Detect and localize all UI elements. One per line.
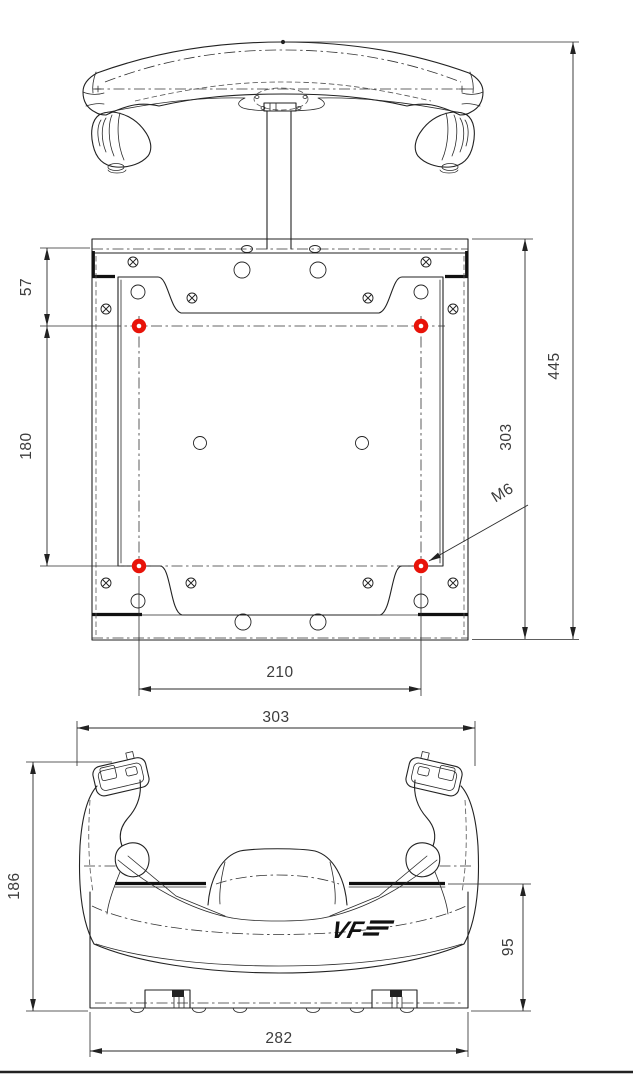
- dim-445-label: 445: [546, 352, 563, 379]
- base-box: [90, 892, 468, 1008]
- dim-95: 95: [448, 884, 531, 1011]
- vf-logo: VF: [329, 917, 396, 944]
- m6-callout: M6: [429, 480, 528, 561]
- dim-303-front-label: 303: [262, 709, 289, 726]
- dim-445: 445: [287, 42, 579, 639]
- apex-point: [281, 40, 285, 44]
- base-clips: [145, 990, 417, 1008]
- dim-95-label: 95: [500, 938, 517, 956]
- vf-logo-text: VF: [329, 917, 367, 944]
- plain-holes: [131, 262, 428, 630]
- dim-303-plate: 303: [472, 239, 579, 640]
- plate-view: [40, 239, 468, 640]
- dim-180-label: 180: [18, 432, 35, 459]
- grip-head: [90, 749, 151, 797]
- dim-282: 282: [90, 1012, 468, 1057]
- dim-210: 210: [139, 576, 421, 696]
- dim-186-label: 186: [6, 872, 23, 899]
- base-feet: [130, 1008, 414, 1013]
- grip-pod: [92, 112, 151, 173]
- dim-303-plate-label: 303: [498, 423, 515, 450]
- technical-drawing: 57 180 303 445 210 M6: [0, 0, 633, 1081]
- dim-57-label: 57: [18, 278, 35, 296]
- shaft-collar: [264, 103, 296, 111]
- drawing-page: 57 180 303 445 210 M6: [0, 0, 633, 1081]
- dim-282-label: 282: [265, 1030, 292, 1047]
- dim-180: 180: [18, 326, 47, 566]
- plate-outline: [92, 239, 468, 640]
- center-hump: [208, 849, 347, 905]
- m6-label: M6: [489, 480, 517, 506]
- m6-mounting-holes: [132, 319, 428, 573]
- front-view: VF: [80, 749, 479, 1012]
- dim-210-label: 210: [266, 664, 293, 681]
- screw-holes: [101, 257, 458, 588]
- shaft: [267, 111, 291, 249]
- wheel-outer-rim: [80, 786, 479, 973]
- inner-plate-outline: [118, 277, 443, 615]
- dim-186: 186: [6, 762, 112, 1011]
- top-view-yoke: [83, 40, 483, 249]
- dim-57: 57: [18, 248, 90, 326]
